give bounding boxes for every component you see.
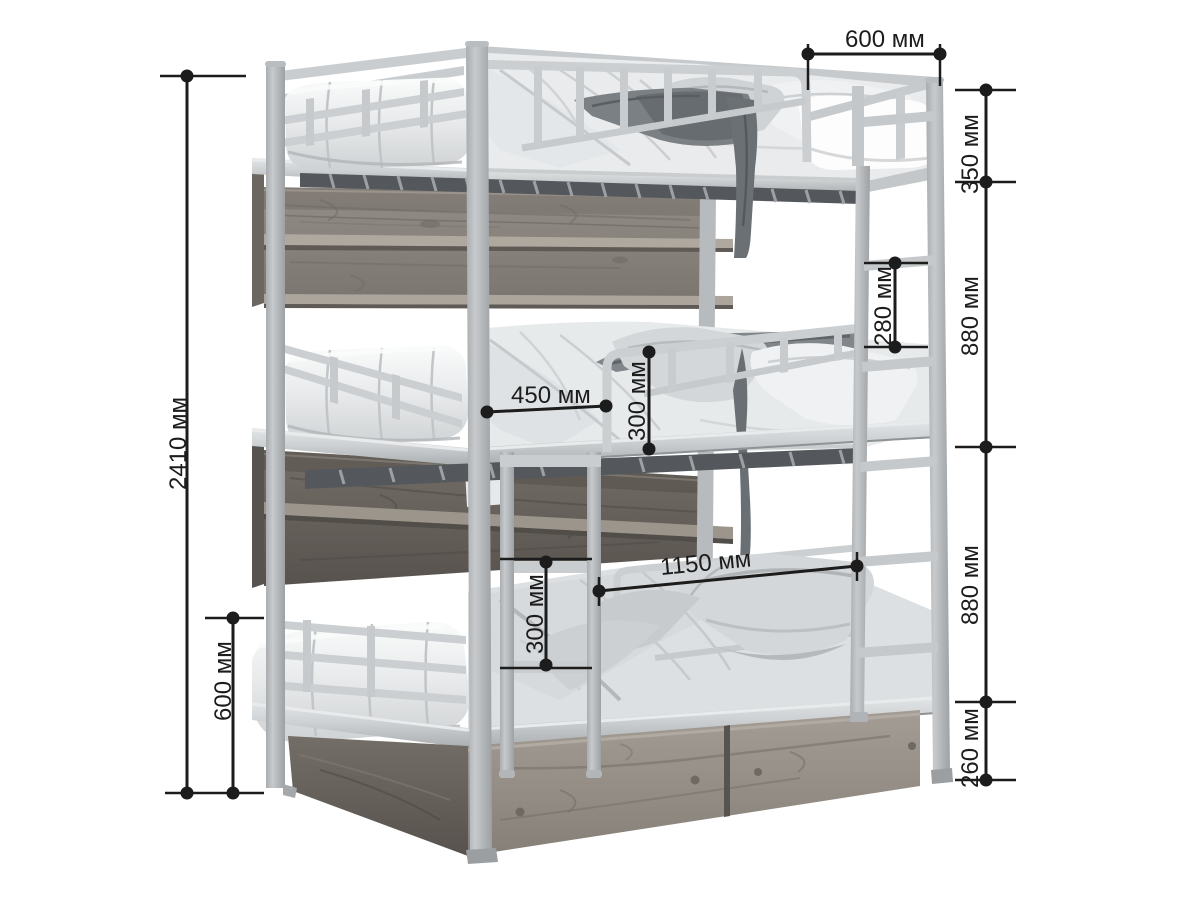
svg-text:450 мм: 450 мм (511, 382, 591, 409)
svg-text:280 мм: 280 мм (870, 266, 897, 346)
svg-text:260 мм: 260 мм (957, 708, 984, 788)
svg-text:2410 мм: 2410 мм (165, 397, 192, 490)
svg-text:350 мм: 350 мм (957, 114, 984, 194)
svg-text:880 мм: 880 мм (957, 276, 984, 356)
svg-text:600 мм: 600 мм (845, 26, 925, 53)
svg-text:600 мм: 600 мм (210, 641, 237, 721)
svg-text:880 мм: 880 мм (957, 545, 984, 625)
svg-text:300 мм: 300 мм (522, 574, 549, 654)
svg-text:300 мм: 300 мм (624, 361, 651, 441)
